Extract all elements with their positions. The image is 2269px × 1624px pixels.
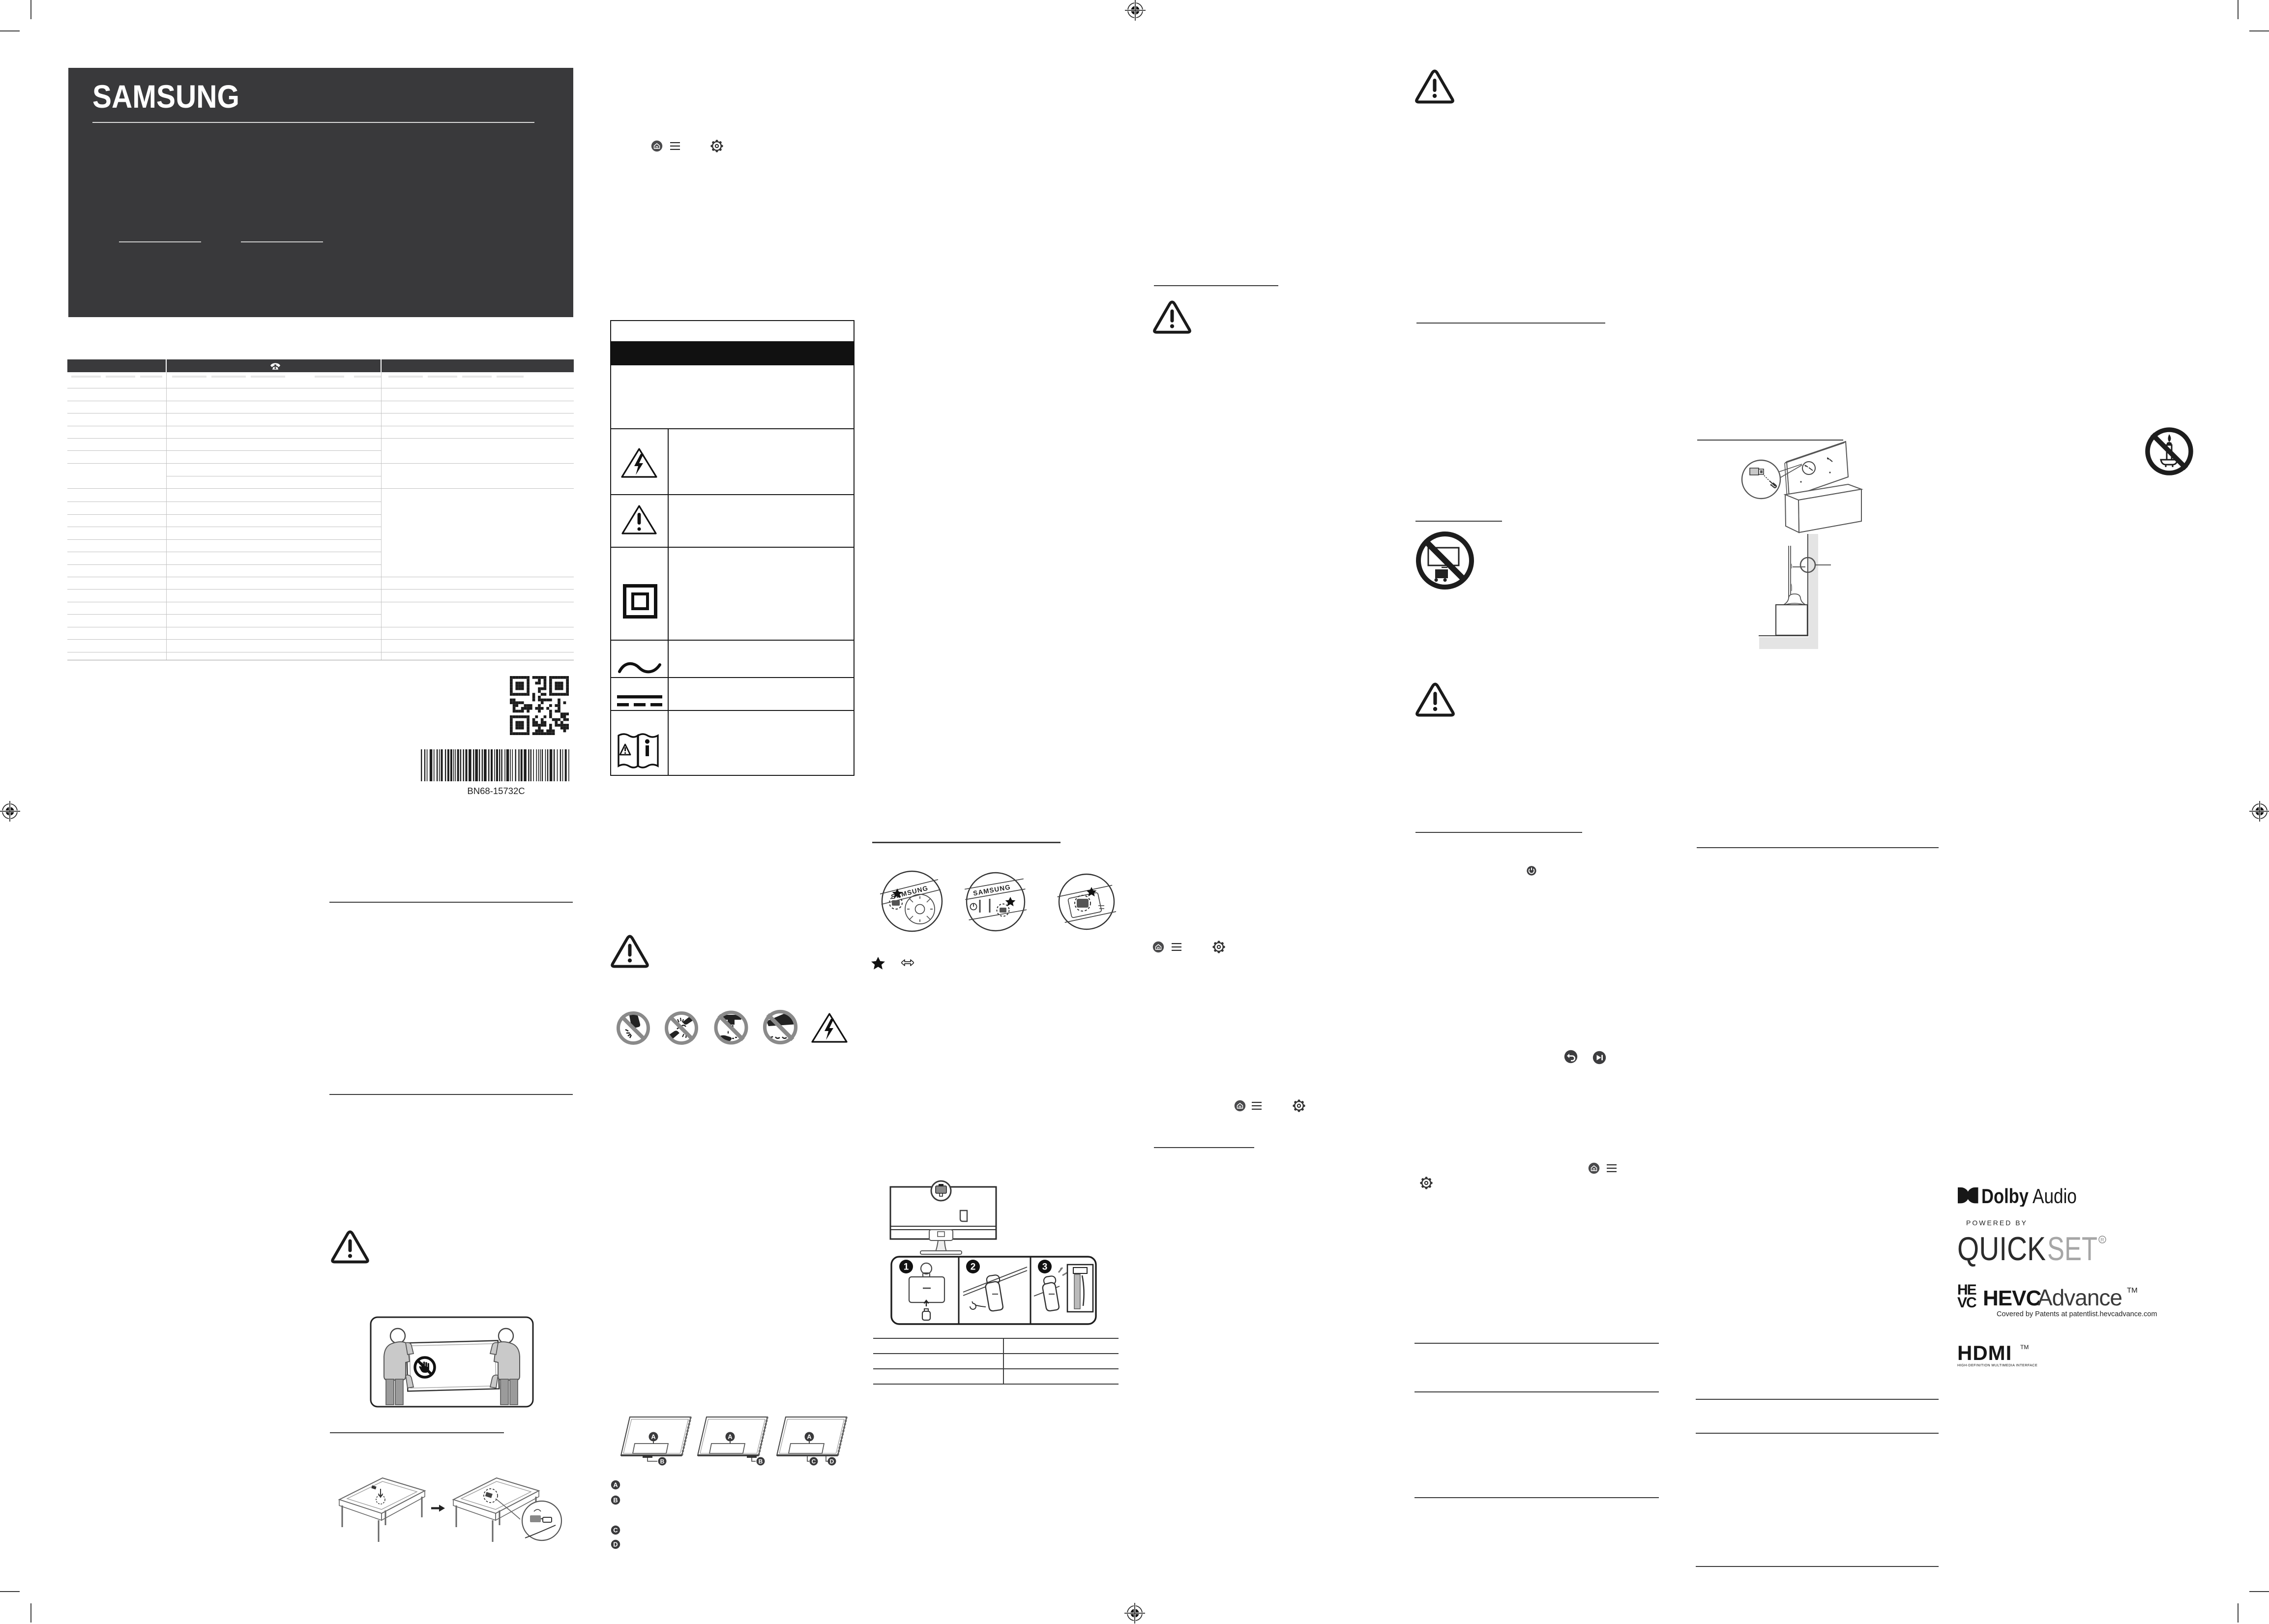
svg-text:3: 3	[1042, 1262, 1048, 1272]
svg-text:SAMSUNG: SAMSUNG	[92, 83, 239, 112]
svg-text:A: A	[651, 1433, 656, 1441]
svg-text:Dolby: Dolby	[1981, 1187, 2029, 1207]
svg-text:QUICK: QUICK	[1957, 1232, 2046, 1268]
svg-text:HIGH-DEFINITION MULTIMEDIA INT: HIGH-DEFINITION MULTIMEDIA INTERFACE	[1957, 1363, 2037, 1367]
svg-text:HEVC: HEVC	[1983, 1286, 2041, 1310]
svg-text:B: B	[759, 1458, 763, 1465]
svg-text:HDMI: HDMI	[1957, 1342, 2012, 1364]
svg-text:A: A	[728, 1433, 733, 1441]
svg-text:B: B	[660, 1458, 665, 1465]
svg-text:TM: TM	[2020, 1344, 2029, 1351]
svg-text:D: D	[613, 1541, 618, 1548]
svg-text:2: 2	[971, 1262, 976, 1272]
svg-text:Audio: Audio	[2033, 1187, 2077, 1207]
svg-text:TM: TM	[2127, 1286, 2138, 1295]
svg-text:Advance: Advance	[2037, 1285, 2122, 1310]
svg-text:Covered by Patents at patentli: Covered by Patents at patentlist.hevcadv…	[1997, 1310, 2157, 1318]
svg-text:SET: SET	[2047, 1232, 2097, 1268]
svg-text:1: 1	[904, 1262, 909, 1272]
svg-text:A: A	[807, 1433, 812, 1441]
svg-text:C: C	[613, 1527, 618, 1534]
svg-text:VC: VC	[1957, 1295, 1976, 1311]
svg-text:A: A	[613, 1481, 618, 1489]
svg-text:R: R	[2100, 1238, 2104, 1243]
svg-text:C: C	[812, 1458, 816, 1465]
svg-text:B: B	[613, 1497, 618, 1504]
svg-text:D: D	[830, 1458, 834, 1465]
